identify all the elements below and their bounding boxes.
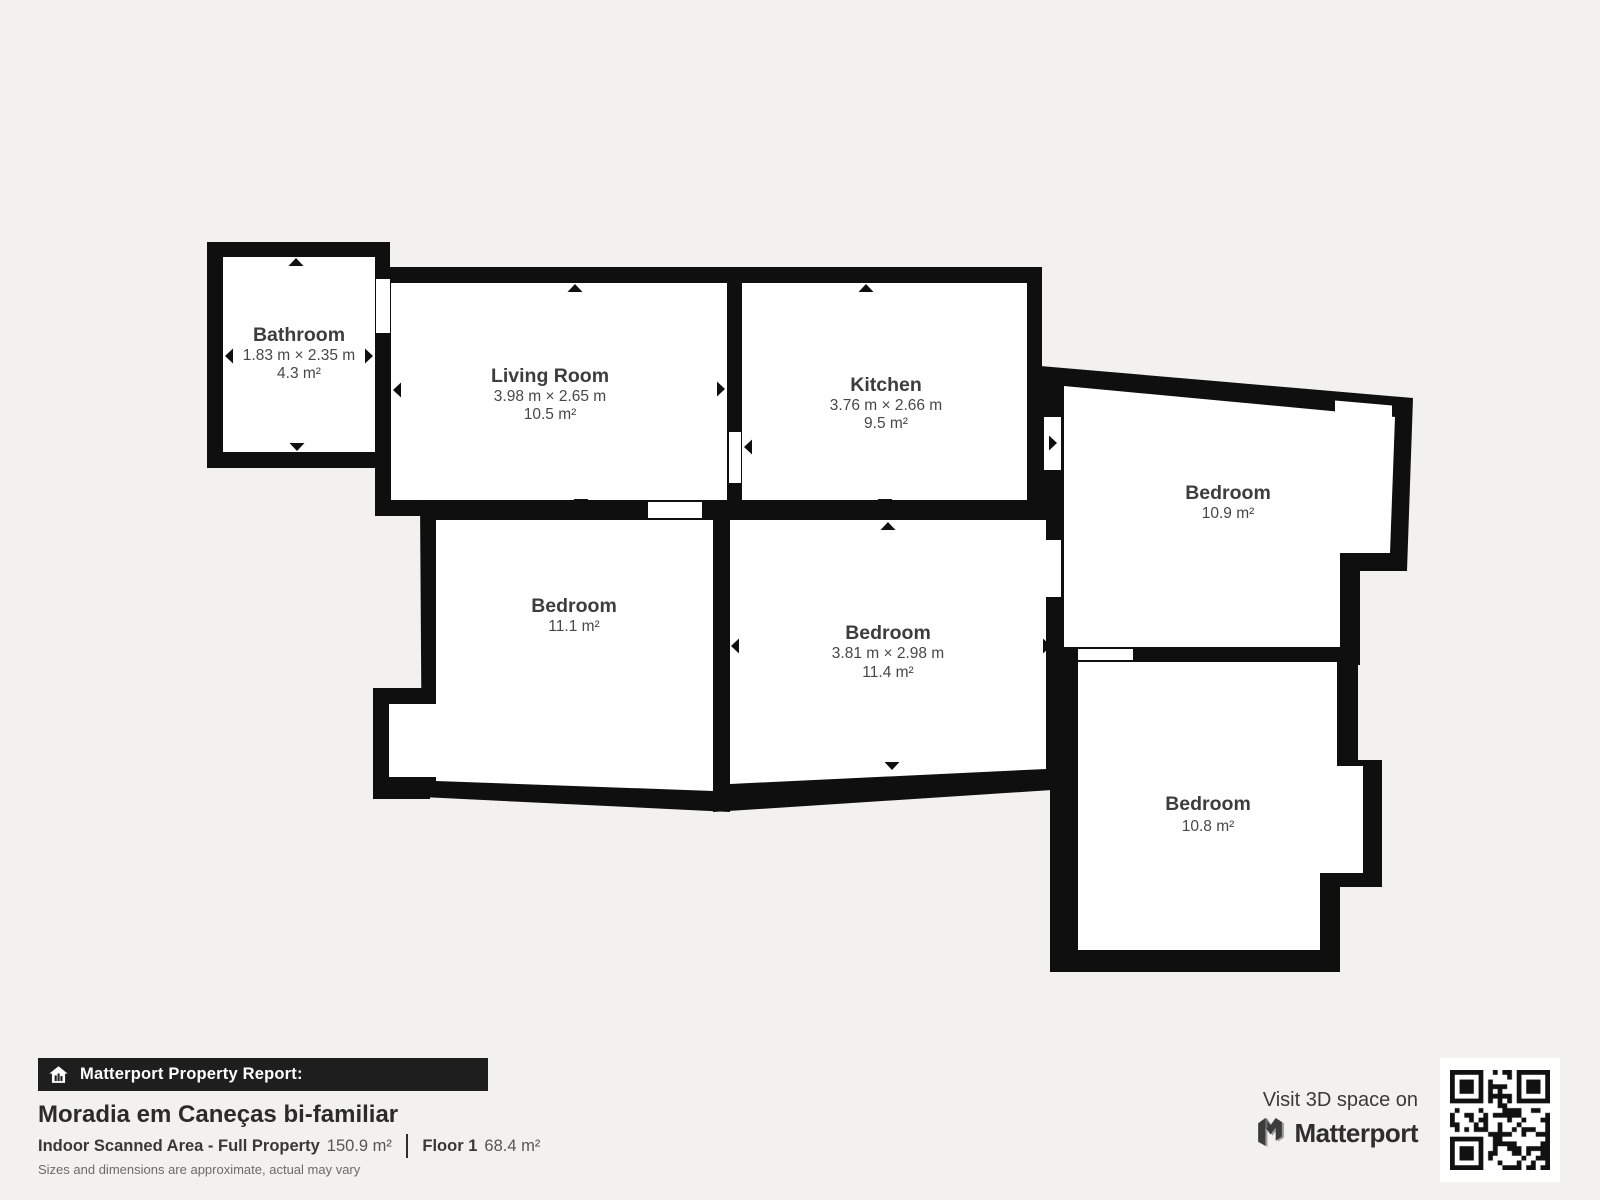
house-bars-icon: [48, 1064, 69, 1085]
divider: [406, 1134, 409, 1158]
visit-3d-label: Visit 3D space on: [1256, 1089, 1418, 1112]
disclaimer-text: Sizes and dimensions are approximate, ac…: [38, 1162, 360, 1177]
opening-bedroom-s-bedroom-ne: [1045, 540, 1061, 597]
qr-code: [1440, 1058, 1560, 1182]
property-title: Moradia em Caneças bi-familiar: [38, 1101, 398, 1129]
room-area: 10.5 m²: [524, 406, 577, 423]
room-dimensions: 3.98 m × 2.65 m: [494, 388, 606, 405]
visit-3d-cta: Visit 3D space on Matterport: [1256, 1089, 1418, 1150]
opening-bedroom-se-top: [1078, 649, 1133, 660]
room-title: Living Room: [491, 365, 609, 387]
room-floor-bedroom-sw-alcove: [389, 704, 436, 777]
room-dimensions: 1.83 m × 2.35 m: [243, 347, 355, 364]
matterport-brand: Matterport: [1256, 1117, 1418, 1150]
room-title: Bedroom: [1185, 482, 1271, 504]
scanned-area-label: Indoor Scanned Area - Full Property: [38, 1137, 320, 1156]
room-title: Bedroom: [845, 622, 931, 644]
room-title: Bathroom: [253, 324, 345, 346]
floor-value: 68.4 m²: [484, 1137, 540, 1156]
room-dimensions: 3.76 m × 2.66 m: [830, 397, 942, 414]
room-title: Bedroom: [1165, 793, 1251, 815]
matterport-wordmark: Matterport: [1294, 1118, 1418, 1149]
room-area: 10.9 m²: [1202, 505, 1255, 522]
room-dimensions: 3.81 m × 2.98 m: [832, 645, 944, 662]
room-area: 4.3 m²: [277, 365, 321, 382]
room-title: Bedroom: [531, 595, 617, 617]
floor-label: Floor 1: [422, 1137, 477, 1156]
qr-code-canvas: [1450, 1070, 1550, 1170]
report-banner: Matterport Property Report:: [38, 1058, 488, 1091]
room-area: 10.8 m²: [1182, 818, 1235, 835]
report-banner-label: Matterport Property Report:: [80, 1065, 303, 1084]
room-area: 11.4 m²: [862, 664, 913, 681]
opening-bathroom-living: [376, 279, 390, 333]
floorplan-rooms: [223, 257, 1395, 950]
opening-living-bedroom: [648, 502, 702, 518]
room-area: 11.1 m²: [548, 618, 599, 635]
room-floor-bedroom-sw: [436, 520, 713, 791]
room-title: Kitchen: [850, 374, 922, 396]
room-area: 9.5 m²: [864, 415, 908, 432]
floorplan: Bathroom 1.83 m × 2.35 m 4.3 m² Living R…: [0, 0, 1600, 1200]
scanned-area-value: 150.9 m²: [327, 1137, 392, 1156]
scanned-area-line: Indoor Scanned Area - Full Property 150.…: [38, 1134, 540, 1158]
opening-living-kitchen: [729, 432, 741, 483]
matterport-m-icon: [1256, 1117, 1284, 1150]
